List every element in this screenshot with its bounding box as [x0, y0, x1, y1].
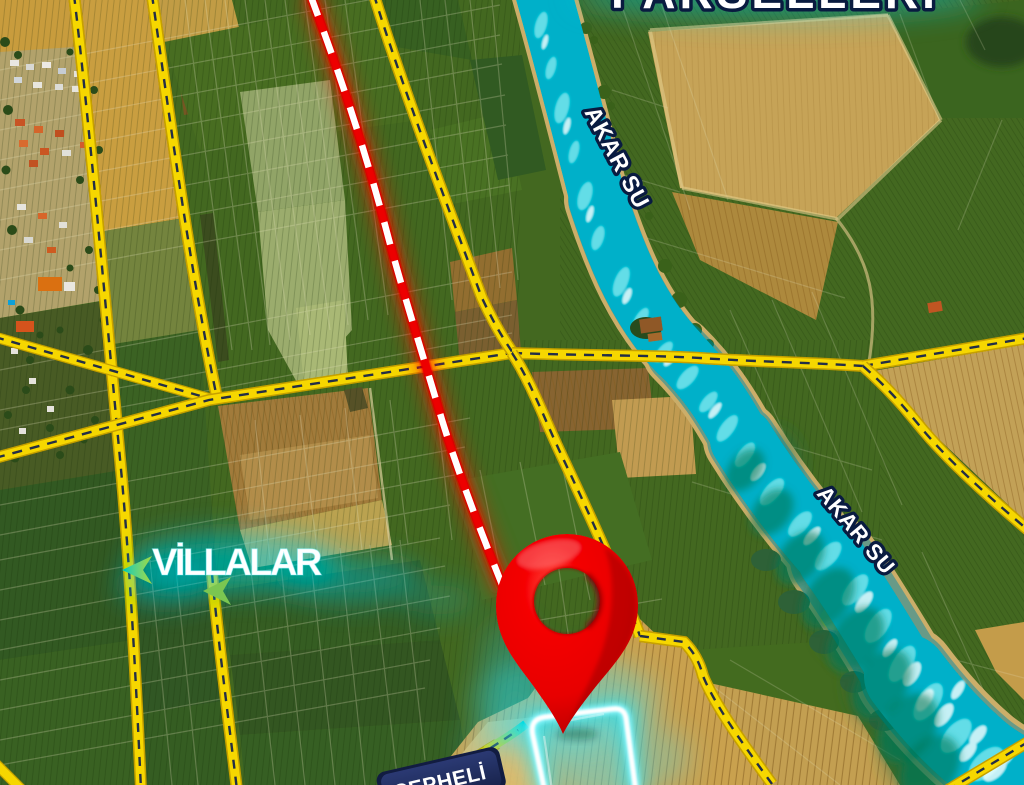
svg-text:PARSELLERİ: PARSELLERİ [611, 0, 939, 18]
svg-text:VİLLALAR: VİLLALAR [152, 542, 322, 584]
